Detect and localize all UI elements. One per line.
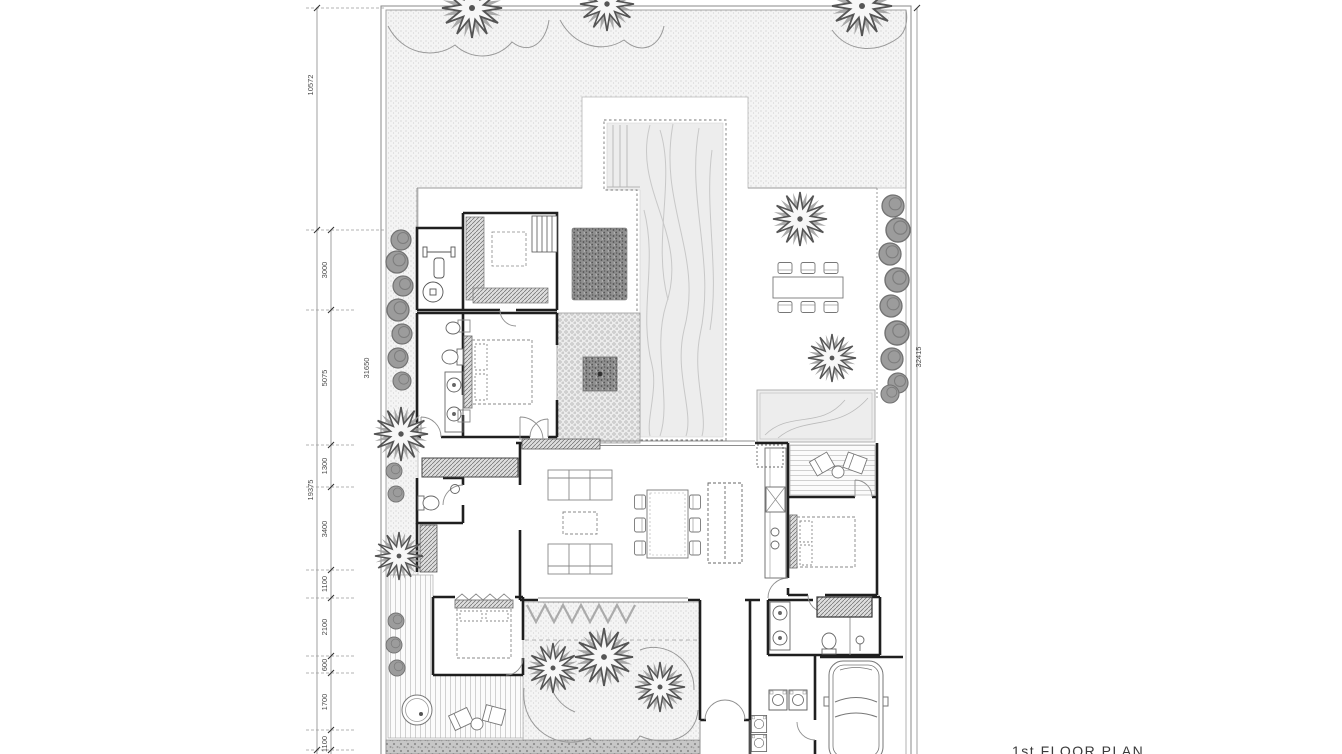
dim-19375: 19375 xyxy=(306,480,315,501)
dim-3000: 3000 xyxy=(320,262,329,279)
dim-10572: 10572 xyxy=(306,75,315,96)
corridor-wardrobe xyxy=(420,525,437,572)
car xyxy=(824,661,888,754)
wardrobe-band xyxy=(817,597,872,617)
sofa-south xyxy=(548,544,612,574)
dim-31650: 31650 xyxy=(362,358,371,379)
vanity2 xyxy=(770,602,790,650)
dim-1300: 1300 xyxy=(320,458,329,475)
powder-room-fixtures xyxy=(418,485,460,511)
basin xyxy=(446,322,460,334)
street-paving-band xyxy=(386,740,700,754)
walk-in-closet xyxy=(466,216,557,303)
kitchen-counter xyxy=(765,448,786,578)
drawing-title: 1st FLOOR PLAN xyxy=(1012,743,1144,754)
pebble-courtyard xyxy=(557,313,640,443)
jacuzzi xyxy=(402,695,432,725)
sliding-door-stack xyxy=(522,439,600,449)
living-room-furniture xyxy=(548,470,612,574)
master-bedroom-furniture xyxy=(458,320,532,422)
gym-equipment xyxy=(423,247,455,302)
dim-5075: 5075 xyxy=(320,370,329,387)
east-bedroom-furniture xyxy=(790,515,855,568)
dim-32415: 32415 xyxy=(914,347,923,368)
south-bedroom-furniture xyxy=(455,600,513,658)
sofa-north xyxy=(548,470,612,500)
closet-island xyxy=(492,232,526,266)
dim-3400: 3400 xyxy=(320,521,329,538)
kitchen xyxy=(708,445,786,578)
witness-lines xyxy=(306,8,386,750)
shrub-patch xyxy=(572,228,627,300)
shower-head xyxy=(856,636,864,644)
dim-2100: 2100 xyxy=(320,619,329,636)
dim-1100a: 1100 xyxy=(320,576,329,592)
floor-plan-drawing: 10572 19375 3000 5075 1300 3400 1100 210… xyxy=(0,0,1342,754)
coffee-table xyxy=(563,512,597,534)
timber-deck-east xyxy=(790,445,875,495)
vanity xyxy=(445,372,463,432)
terrace-dining-set xyxy=(773,263,843,313)
floor-plan-page: 10572 19375 3000 5075 1300 3400 1100 210… xyxy=(0,0,1342,754)
water-feature-pond xyxy=(757,390,875,442)
dim-600: 600 xyxy=(320,659,329,672)
laundry xyxy=(751,690,807,752)
dim-1700: 1700 xyxy=(320,694,329,711)
stair xyxy=(532,216,557,252)
entry-console xyxy=(422,458,518,477)
toilet-bowl xyxy=(442,350,458,364)
bathroom1-fixtures xyxy=(442,322,463,432)
toilet2 xyxy=(822,633,836,649)
dining-set xyxy=(635,490,701,558)
dim-1100b: 1100 xyxy=(320,736,329,752)
